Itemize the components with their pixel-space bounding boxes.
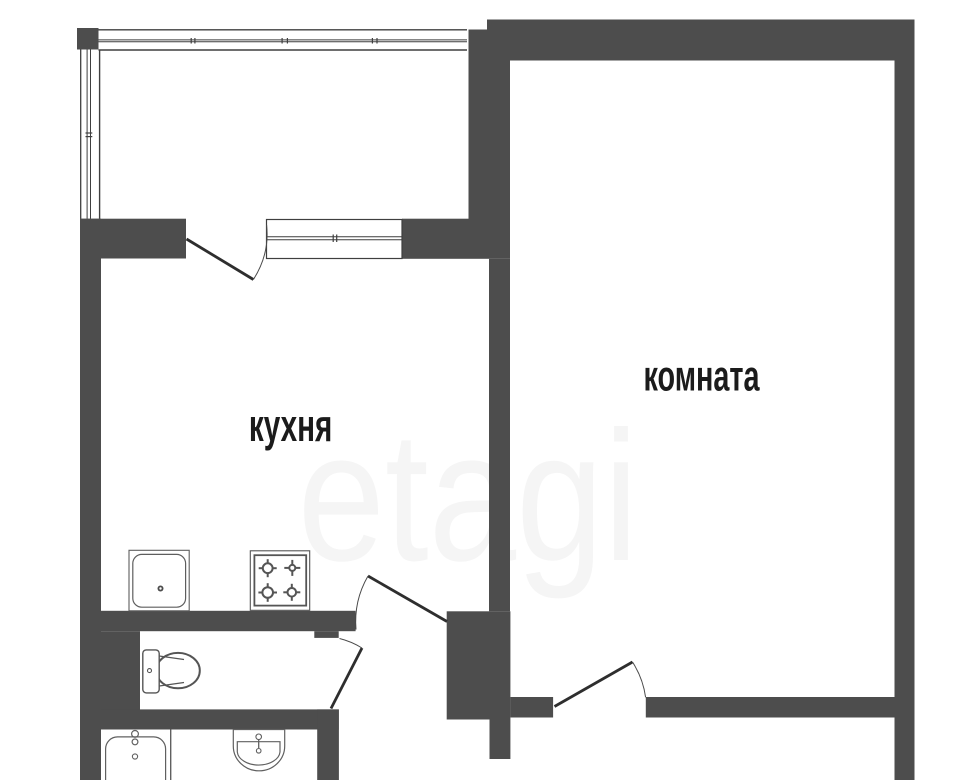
svg-text:кухня: кухня	[249, 401, 332, 452]
svg-text:etagi: etagi	[298, 394, 639, 600]
svg-text:комната: комната	[643, 352, 760, 400]
